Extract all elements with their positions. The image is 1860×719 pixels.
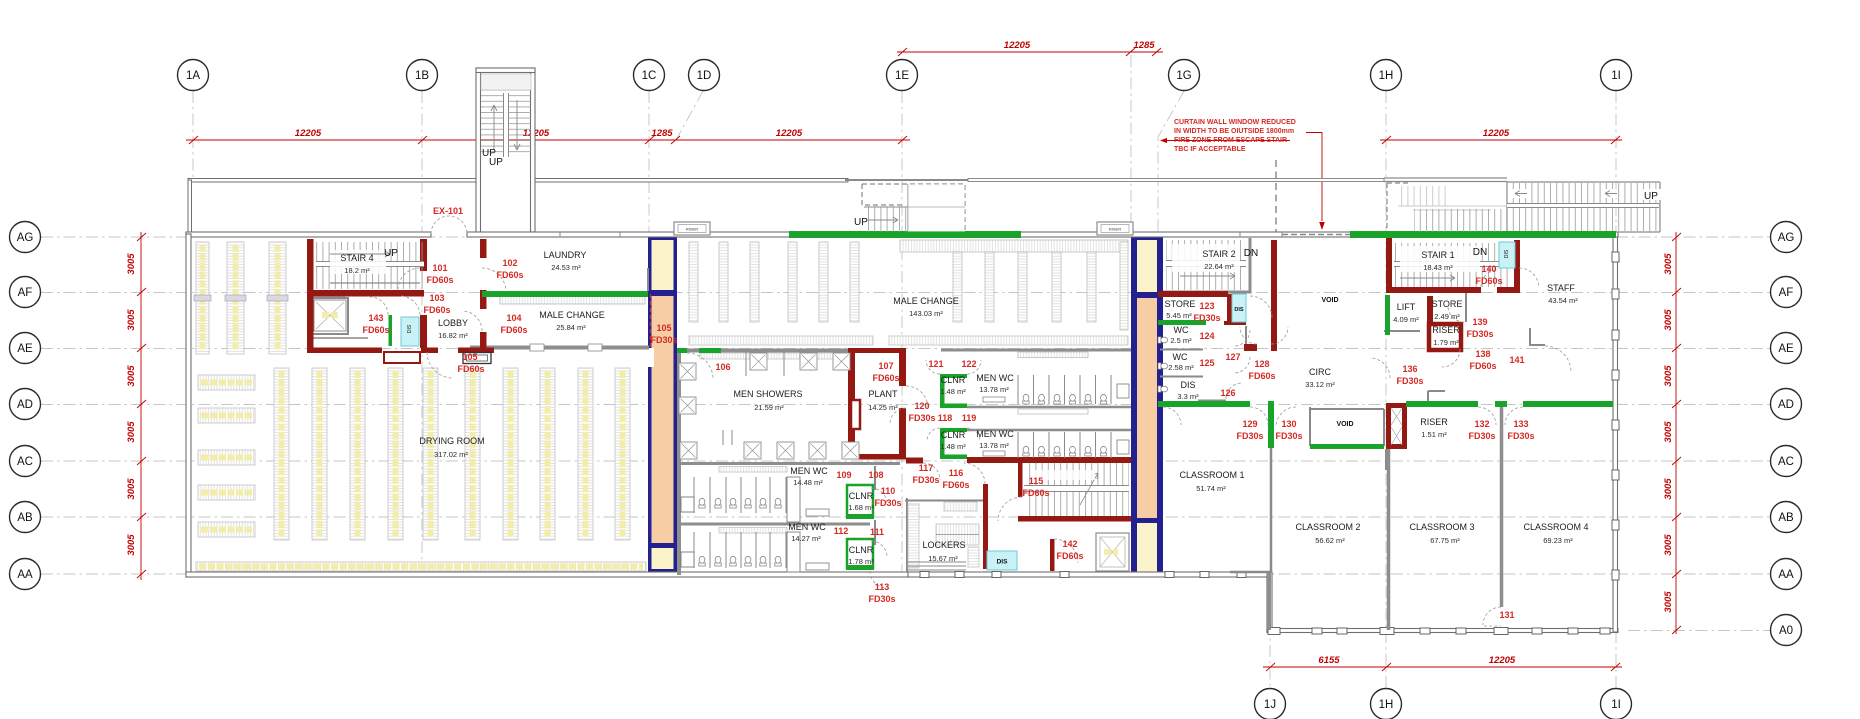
- svg-text:143.03 m²: 143.03 m²: [909, 309, 943, 318]
- svg-text:1.48 m²: 1.48 m²: [940, 442, 966, 451]
- svg-text:12205: 12205: [1004, 40, 1031, 51]
- svg-text:110: 110: [881, 486, 896, 496]
- svg-text:LOCKERS: LOCKERS: [922, 540, 965, 550]
- svg-text:3005: 3005: [1663, 591, 1674, 613]
- svg-text:14.25 m²: 14.25 m²: [868, 403, 898, 412]
- svg-text:16.82 m²: 16.82 m²: [438, 331, 468, 340]
- svg-text:1.48 m²: 1.48 m²: [940, 387, 966, 396]
- svg-text:104: 104: [506, 313, 521, 323]
- svg-text:FD60s: FD60s: [1056, 551, 1083, 561]
- svg-text:15.67 m²: 15.67 m²: [928, 554, 958, 563]
- svg-text:AE: AE: [17, 343, 33, 355]
- svg-text:CLNR: CLNR: [849, 491, 874, 501]
- svg-text:105: 105: [462, 352, 477, 362]
- svg-text:1H: 1H: [1379, 70, 1394, 82]
- svg-text:STAIR 4: STAIR 4: [340, 253, 373, 263]
- svg-text:317.02 m²: 317.02 m²: [434, 450, 468, 459]
- svg-text:AB: AB: [17, 512, 33, 524]
- svg-text:AF: AF: [18, 287, 33, 299]
- svg-text:113: 113: [875, 582, 890, 592]
- svg-text:1.78 m²: 1.78 m²: [848, 557, 874, 566]
- svg-text:AA: AA: [17, 569, 33, 581]
- svg-text:DN: DN: [1244, 248, 1258, 259]
- svg-text:FD30s: FD30s: [1193, 313, 1220, 323]
- svg-text:FD60s: FD60s: [1022, 488, 1049, 498]
- svg-text:22.64 m²: 22.64 m²: [1204, 262, 1234, 271]
- svg-text:WC: WC: [1174, 325, 1189, 335]
- svg-text:102: 102: [502, 258, 517, 268]
- svg-text:107: 107: [878, 361, 893, 371]
- svg-text:FD30s: FD30s: [874, 498, 901, 508]
- svg-text:1.79 m²: 1.79 m²: [1433, 338, 1459, 347]
- svg-text:136: 136: [1402, 364, 1417, 374]
- svg-text:DIS: DIS: [997, 559, 1009, 566]
- svg-text:131: 131: [1499, 610, 1514, 620]
- svg-text:FD30s: FD30s: [1468, 431, 1495, 441]
- svg-text:CIRC: CIRC: [1309, 367, 1331, 377]
- svg-text:1B: 1B: [415, 70, 429, 82]
- svg-text:112: 112: [834, 526, 849, 536]
- svg-text:RISER: RISER: [1420, 417, 1448, 427]
- svg-text:126: 126: [1220, 388, 1235, 398]
- svg-text:12205: 12205: [1489, 655, 1516, 666]
- svg-text:RISER: RISER: [1432, 325, 1460, 335]
- svg-text:STAFF: STAFF: [1547, 283, 1575, 293]
- svg-text:AD: AD: [1778, 399, 1794, 411]
- svg-text:UP: UP: [854, 217, 868, 228]
- svg-text:105: 105: [656, 323, 671, 333]
- svg-text:5.45 m²: 5.45 m²: [1166, 311, 1192, 320]
- svg-text:6155: 6155: [1318, 655, 1340, 666]
- svg-text:CLNR: CLNR: [849, 545, 874, 555]
- svg-text:33.12 m²: 33.12 m²: [1305, 380, 1335, 389]
- svg-text:123: 123: [1199, 301, 1214, 311]
- svg-text:AG: AG: [1778, 232, 1795, 244]
- svg-text:116: 116: [949, 468, 964, 478]
- svg-text:3005: 3005: [126, 365, 137, 387]
- svg-text:CLASSROOM 2: CLASSROOM 2: [1295, 522, 1360, 532]
- svg-text:FD60s: FD60s: [496, 270, 523, 280]
- svg-text:111: 111: [870, 527, 884, 537]
- svg-text:2.58 m²: 2.58 m²: [1168, 363, 1194, 372]
- svg-text:12205: 12205: [776, 128, 803, 139]
- svg-text:DIS: DIS: [407, 324, 413, 333]
- svg-text:4.09 m²: 4.09 m²: [1393, 315, 1419, 324]
- svg-text:3005: 3005: [126, 478, 137, 500]
- svg-text:2.5 m²: 2.5 m²: [1170, 336, 1192, 345]
- svg-text:MEN WC: MEN WC: [788, 522, 826, 532]
- svg-text:AG: AG: [17, 232, 34, 244]
- svg-text:CLNR: CLNR: [941, 430, 966, 440]
- svg-text:LOBBY: LOBBY: [438, 318, 468, 328]
- svg-text:1C: 1C: [642, 70, 657, 82]
- svg-text:14.27 m²: 14.27 m²: [791, 534, 821, 543]
- svg-text:LIFT: LIFT: [1397, 302, 1416, 312]
- svg-text:MEN WC: MEN WC: [976, 373, 1014, 383]
- svg-text:119: 119: [962, 413, 977, 423]
- svg-text:STAIR 1: STAIR 1: [1421, 250, 1454, 260]
- svg-text:WC: WC: [1173, 352, 1188, 362]
- svg-text:103: 103: [429, 293, 444, 303]
- svg-text:1285: 1285: [1133, 40, 1155, 51]
- svg-text:1D: 1D: [697, 70, 712, 82]
- svg-text:FD30s: FD30s: [912, 475, 939, 485]
- svg-text:DIS: DIS: [1234, 307, 1244, 313]
- svg-text:3005: 3005: [1663, 478, 1674, 500]
- svg-text:CLASSROOM 4: CLASSROOM 4: [1523, 522, 1588, 532]
- svg-text:3005: 3005: [1663, 421, 1674, 443]
- svg-text:133: 133: [1513, 419, 1528, 429]
- svg-text:VOID: VOID: [1336, 421, 1353, 428]
- svg-text:DN: DN: [1473, 247, 1487, 258]
- svg-text:18.43 m²: 18.43 m²: [1423, 263, 1453, 272]
- svg-text:FD30s: FD30s: [1236, 431, 1263, 441]
- svg-text:A0: A0: [1779, 625, 1793, 637]
- svg-text:AA: AA: [1778, 569, 1794, 581]
- svg-text:138: 138: [1475, 349, 1490, 359]
- svg-text:69.23 m²: 69.23 m²: [1543, 536, 1573, 545]
- svg-text:1J: 1J: [1264, 699, 1276, 711]
- svg-text:RISER: RISER: [686, 227, 698, 232]
- svg-text:3005: 3005: [1663, 365, 1674, 387]
- svg-text:1G: 1G: [1176, 70, 1191, 82]
- svg-text:3005: 3005: [126, 421, 137, 443]
- svg-text:56.62 m²: 56.62 m²: [1315, 536, 1345, 545]
- svg-text:139: 139: [1472, 317, 1487, 327]
- svg-text:FD60s: FD60s: [423, 305, 450, 315]
- svg-text:EX-101: EX-101: [433, 206, 463, 216]
- svg-text:121: 121: [928, 359, 943, 369]
- svg-text:FD30s: FD30s: [868, 594, 895, 604]
- svg-text:UP: UP: [1644, 191, 1658, 202]
- svg-text:RISER: RISER: [1109, 227, 1121, 232]
- svg-text:13.78 m²: 13.78 m²: [979, 385, 1009, 394]
- svg-text:13.78 m²: 13.78 m²: [979, 441, 1009, 450]
- svg-text:MEN WC: MEN WC: [976, 429, 1014, 439]
- svg-text:3.3 m²: 3.3 m²: [1177, 392, 1199, 401]
- svg-text:AF: AF: [1779, 287, 1794, 299]
- svg-text:1A: 1A: [186, 70, 200, 82]
- svg-text:CURTAIN WALL WINDOW REDUCED: CURTAIN WALL WINDOW REDUCED: [1174, 119, 1296, 126]
- svg-text:128: 128: [1254, 359, 1269, 369]
- svg-text:106: 106: [715, 362, 730, 372]
- svg-text:FD30s: FD30s: [650, 335, 677, 345]
- svg-text:MALE CHANGE: MALE CHANGE: [539, 310, 605, 320]
- svg-text:21.59 m²: 21.59 m²: [754, 403, 784, 412]
- svg-text:3005: 3005: [126, 253, 137, 275]
- svg-text:FD60s: FD60s: [872, 373, 899, 383]
- svg-text:AB: AB: [1778, 512, 1794, 524]
- svg-text:129: 129: [1242, 419, 1257, 429]
- svg-text:FD30s: FD30s: [1507, 431, 1534, 441]
- svg-text:FD60s: FD60s: [362, 325, 389, 335]
- svg-text:AC: AC: [1778, 456, 1794, 468]
- svg-text:141: 141: [1509, 355, 1524, 365]
- svg-text:FD60s: FD60s: [457, 364, 484, 374]
- svg-text:PLANT: PLANT: [868, 389, 898, 399]
- svg-text:24.53 m²: 24.53 m²: [551, 263, 581, 272]
- svg-text:14.48 m²: 14.48 m²: [793, 478, 823, 487]
- svg-text:FD30s: FD30s: [1396, 376, 1423, 386]
- svg-text:UP: UP: [489, 157, 503, 168]
- svg-text:CLASSROOM 3: CLASSROOM 3: [1409, 522, 1474, 532]
- svg-text:1E: 1E: [895, 70, 909, 82]
- svg-text:DIS: DIS: [1504, 249, 1510, 258]
- svg-text:LAUNDRY: LAUNDRY: [544, 250, 587, 260]
- svg-text:43.54 m²: 43.54 m²: [1548, 296, 1578, 305]
- svg-text:140: 140: [1481, 264, 1496, 274]
- svg-text:MALE CHANGE: MALE CHANGE: [893, 296, 959, 306]
- svg-text:FD60s: FD60s: [1248, 371, 1275, 381]
- svg-text:117: 117: [919, 463, 934, 473]
- svg-text:CLASSROOM 1: CLASSROOM 1: [1179, 470, 1244, 480]
- svg-text:TBC IF ACCEPTABLE: TBC IF ACCEPTABLE: [1174, 146, 1246, 153]
- svg-text:2.49 m²: 2.49 m²: [1434, 312, 1460, 321]
- svg-text:FD60s: FD60s: [1469, 361, 1496, 371]
- svg-text:12205: 12205: [1483, 128, 1510, 139]
- svg-text:67.75 m²: 67.75 m²: [1430, 536, 1460, 545]
- svg-text:122: 122: [961, 359, 976, 369]
- svg-text:51.74 m²: 51.74 m²: [1196, 484, 1226, 493]
- svg-text:132: 132: [1474, 419, 1489, 429]
- svg-text:1H: 1H: [1379, 699, 1394, 711]
- svg-text:127: 127: [1225, 352, 1240, 362]
- svg-text:142: 142: [1062, 539, 1077, 549]
- svg-text:AC: AC: [17, 456, 33, 468]
- svg-text:FD60s: FD60s: [942, 480, 969, 490]
- svg-text:3005: 3005: [1663, 253, 1674, 275]
- svg-text:1285: 1285: [651, 128, 673, 139]
- svg-text:UP: UP: [384, 248, 398, 259]
- svg-text:CLNR: CLNR: [941, 375, 966, 385]
- svg-text:AE: AE: [1778, 343, 1794, 355]
- svg-text:1.68 m²: 1.68 m²: [848, 503, 874, 512]
- svg-text:3005: 3005: [126, 534, 137, 556]
- svg-text:FD60s: FD60s: [426, 275, 453, 285]
- svg-text:FD60s: FD60s: [1475, 276, 1502, 286]
- svg-text:115: 115: [1029, 476, 1044, 486]
- svg-text:109: 109: [836, 470, 851, 480]
- svg-text:25.84 m²: 25.84 m²: [556, 323, 586, 332]
- svg-text:1.51 m²: 1.51 m²: [1421, 430, 1447, 439]
- svg-text:FD60s: FD60s: [500, 325, 527, 335]
- svg-text:143: 143: [368, 313, 383, 323]
- svg-text:124: 124: [1199, 331, 1214, 341]
- svg-text:FD30s: FD30s: [1275, 431, 1302, 441]
- svg-text:120: 120: [914, 401, 929, 411]
- svg-text:118: 118: [938, 413, 953, 423]
- svg-text:130: 130: [1281, 419, 1296, 429]
- svg-text:FD30s: FD30s: [908, 413, 935, 423]
- svg-text:125: 125: [1199, 358, 1214, 368]
- svg-text:STORE: STORE: [1432, 299, 1463, 309]
- svg-text:STAIR 2: STAIR 2: [1202, 249, 1235, 259]
- svg-text:1I: 1I: [1611, 699, 1621, 711]
- svg-text:18.2 m²: 18.2 m²: [344, 266, 370, 275]
- svg-text:FD30s: FD30s: [1466, 329, 1493, 339]
- svg-text:3005: 3005: [126, 309, 137, 331]
- svg-text:VOID: VOID: [1321, 297, 1338, 304]
- svg-text:FIRE ZONE FROM ESCAPE STAIR: FIRE ZONE FROM ESCAPE STAIR: [1174, 137, 1287, 144]
- svg-text:3005: 3005: [1663, 309, 1674, 331]
- svg-text:MEN SHOWERS: MEN SHOWERS: [733, 389, 802, 399]
- svg-text:STORE: STORE: [1165, 299, 1196, 309]
- svg-text:1I: 1I: [1611, 70, 1621, 82]
- svg-text:101: 101: [432, 263, 447, 273]
- svg-text:108: 108: [868, 470, 883, 480]
- svg-text:3005: 3005: [1663, 534, 1674, 556]
- svg-text:DRYING ROOM: DRYING ROOM: [419, 436, 484, 446]
- svg-text:AD: AD: [17, 399, 33, 411]
- svg-text:IN WIDTH TO BE OIUTSIDE 1800mm: IN WIDTH TO BE OIUTSIDE 1800mm: [1174, 128, 1294, 135]
- svg-text:12205: 12205: [295, 128, 322, 139]
- svg-text:MEN WC: MEN WC: [790, 466, 828, 476]
- svg-text:DIS: DIS: [1180, 380, 1195, 390]
